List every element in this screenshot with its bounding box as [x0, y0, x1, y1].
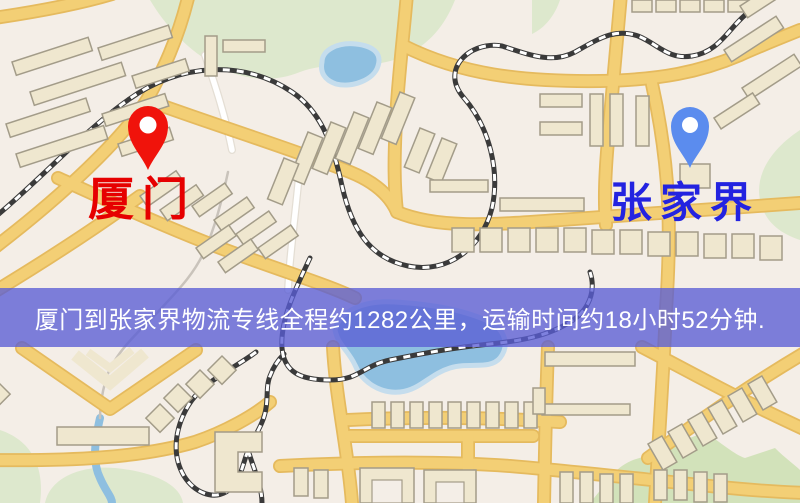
map-canvas: [0, 0, 800, 503]
route-info-text: 厦门到张家界物流专线全程约1282公里，运输时间约18小时52分钟.: [35, 300, 765, 335]
pond: [322, 44, 380, 85]
red-map-pin-icon: [124, 102, 172, 172]
origin-pin[interactable]: [124, 102, 172, 177]
destination-label: 张家界: [610, 182, 760, 224]
blue-map-pin-icon: [667, 104, 713, 170]
destination-pin[interactable]: [667, 104, 713, 175]
origin-label: 厦门: [88, 176, 196, 222]
route-info-banner: 厦门到张家界物流专线全程约1282公里，运输时间约18小时52分钟.: [0, 288, 800, 347]
map-screenshot: 厦门 张家界 厦门到张家界物流专线全程约1282公里，运输时间约18小时52分钟…: [0, 0, 800, 503]
